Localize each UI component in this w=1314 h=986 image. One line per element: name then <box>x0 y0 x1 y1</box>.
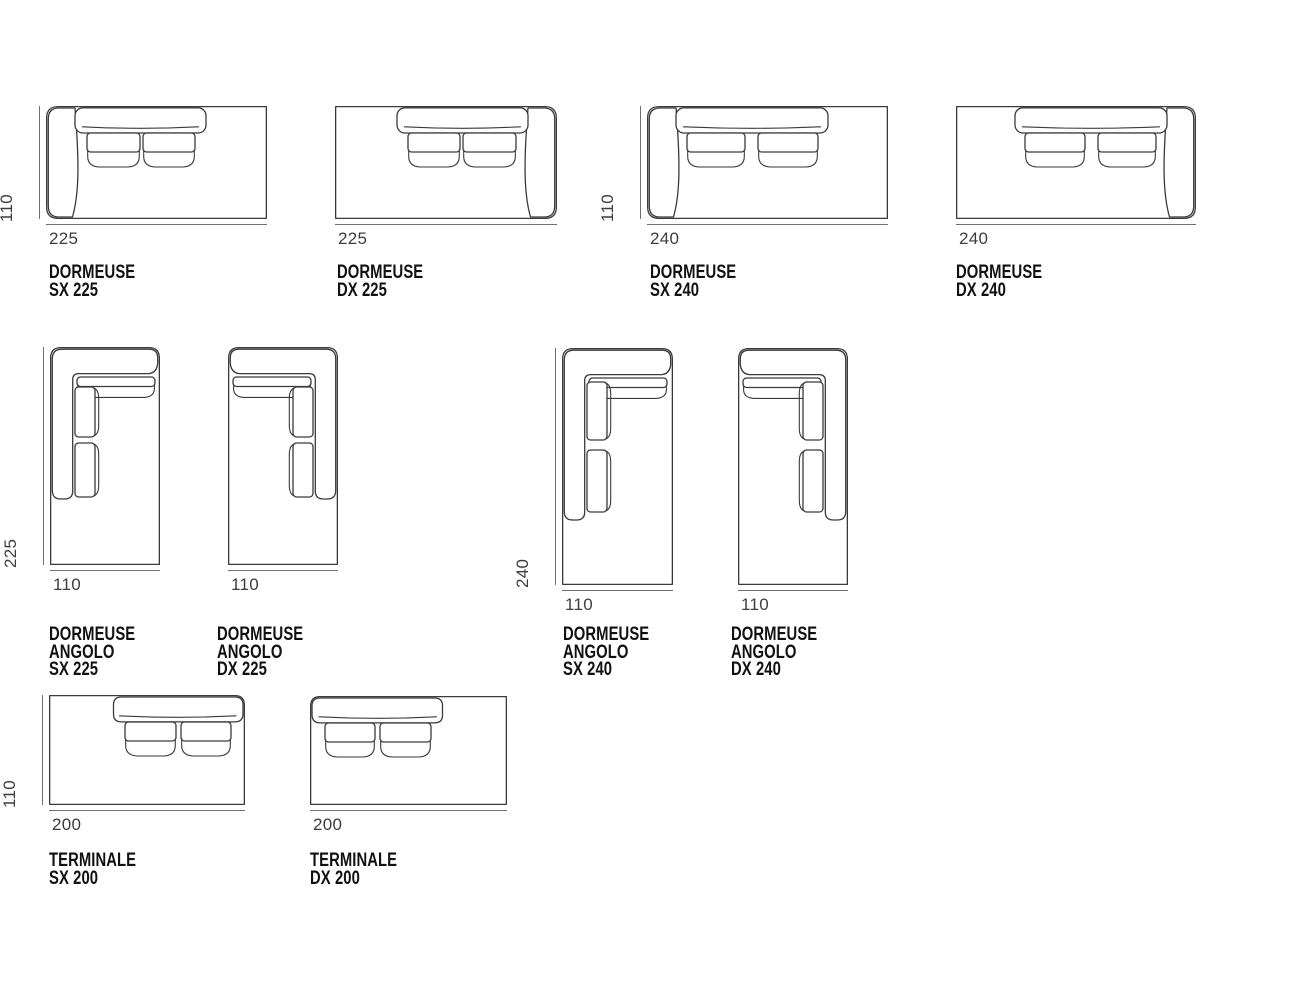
width-dimension-line <box>310 810 507 811</box>
sofa-top-view-drawing-dormeuse-angolo-dx-225 <box>228 347 338 565</box>
width-dimension-line <box>46 224 267 225</box>
sofa-top-view-drawing-dormeuse-angolo-sx-225 <box>50 347 160 565</box>
module-name-label: TERMINALE DX 200 <box>310 852 397 887</box>
width-dimension-value: 240 <box>650 229 679 249</box>
depth-dimension-line <box>42 695 43 805</box>
sofa-top-view-drawing-terminale-sx-200 <box>49 695 245 805</box>
sofa-top-view-drawing-dormeuse-sx-225 <box>46 106 267 219</box>
module-name-label: DORMEUSE SX 240 <box>650 264 736 299</box>
width-dimension-value: 240 <box>959 229 988 249</box>
depth-dimension-value: 110 <box>0 194 17 222</box>
module-name-label: DORMEUSE ANGOLO SX 240 <box>563 626 649 679</box>
depth-dimension-line <box>43 347 44 565</box>
width-dimension-value: 110 <box>231 575 259 595</box>
width-dimension-line <box>956 224 1196 225</box>
module-name-label: DORMEUSE SX 225 <box>49 264 135 299</box>
width-dimension-line <box>647 224 888 225</box>
sofa-top-view-drawing-dormeuse-sx-240 <box>647 106 888 219</box>
depth-dimension-value: 240 <box>513 559 533 588</box>
sofa-top-view-drawing-terminale-dx-200 <box>310 696 507 805</box>
width-dimension-line <box>335 224 557 225</box>
depth-dimension-line <box>555 348 556 585</box>
width-dimension-line <box>738 590 848 591</box>
width-dimension-value: 200 <box>313 815 342 835</box>
module-name-label: DORMEUSE ANGOLO DX 225 <box>217 626 303 679</box>
module-name-label: DORMEUSE ANGOLO SX 225 <box>49 626 135 679</box>
sofa-top-view-drawing-dormeuse-angolo-dx-240 <box>738 348 848 585</box>
sofa-top-view-drawing-dormeuse-dx-225 <box>335 106 557 219</box>
module-name-label: DORMEUSE DX 225 <box>337 264 423 299</box>
width-dimension-value: 110 <box>53 575 81 595</box>
module-name-label: DORMEUSE DX 240 <box>956 264 1042 299</box>
depth-dimension-line <box>640 106 641 219</box>
width-dimension-value: 225 <box>49 229 78 249</box>
module-name-label: TERMINALE SX 200 <box>49 852 136 887</box>
width-dimension-line <box>562 590 673 591</box>
sofa-spec-sheet: 110 225 DORMEUSE SX 225 225 DORMEUSE DX … <box>0 0 1314 986</box>
width-dimension-line <box>50 570 160 571</box>
depth-dimension-value: 110 <box>598 194 618 222</box>
width-dimension-line <box>228 570 338 571</box>
width-dimension-value: 200 <box>52 815 81 835</box>
depth-dimension-line <box>39 106 40 219</box>
width-dimension-value: 110 <box>565 595 593 615</box>
sofa-top-view-drawing-dormeuse-dx-240 <box>956 106 1196 219</box>
width-dimension-value: 225 <box>338 229 367 249</box>
sofa-top-view-drawing-dormeuse-angolo-sx-240 <box>562 348 673 585</box>
module-name-label: DORMEUSE ANGOLO DX 240 <box>731 626 817 679</box>
depth-dimension-value: 110 <box>0 780 20 808</box>
width-dimension-line <box>49 810 245 811</box>
depth-dimension-value: 225 <box>1 539 21 568</box>
width-dimension-value: 110 <box>741 595 769 615</box>
